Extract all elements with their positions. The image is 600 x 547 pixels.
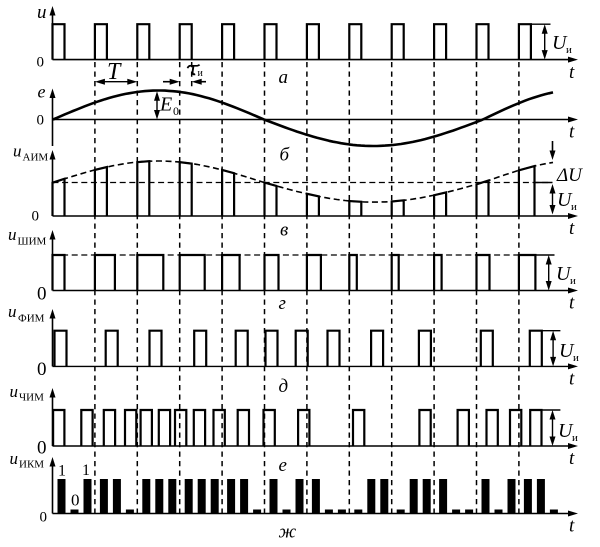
svg-text:0: 0 <box>37 54 45 70</box>
svg-text:0: 0 <box>40 510 48 526</box>
svg-text:u: u <box>8 225 17 244</box>
svg-text:б: б <box>280 145 291 166</box>
svg-text:t: t <box>569 62 575 83</box>
svg-text:г: г <box>279 293 286 314</box>
svg-text:в: в <box>280 220 288 241</box>
svg-text:t: t <box>569 448 575 469</box>
svg-text:ΔU: ΔU <box>556 165 583 186</box>
svg-text:0: 0 <box>71 491 80 510</box>
svg-text:u: u <box>13 142 22 161</box>
svg-text:и: и <box>566 44 572 56</box>
svg-text:д: д <box>279 376 289 397</box>
svg-text:1: 1 <box>82 462 90 479</box>
svg-text:1: 1 <box>58 463 66 480</box>
svg-text:0: 0 <box>173 104 179 118</box>
svg-text:а: а <box>279 67 289 88</box>
svg-text:е: е <box>279 455 287 476</box>
svg-text:0: 0 <box>37 284 47 305</box>
svg-text:t: t <box>569 369 575 390</box>
svg-text:u: u <box>10 382 19 401</box>
svg-text:u: u <box>10 449 19 468</box>
svg-text:E: E <box>159 94 172 116</box>
svg-text:ЧИМ: ЧИМ <box>19 392 44 404</box>
svg-text:u: u <box>37 2 47 23</box>
svg-text:0: 0 <box>32 209 40 225</box>
svg-text:и: и <box>572 432 578 444</box>
svg-text:ИКМ: ИКМ <box>19 459 44 471</box>
svg-text:t: t <box>569 218 575 239</box>
svg-text:и: и <box>198 68 204 79</box>
svg-text:АИМ: АИМ <box>23 152 49 164</box>
svg-text:и: и <box>570 275 576 287</box>
svg-text:0: 0 <box>37 438 47 459</box>
svg-text:ФИМ: ФИМ <box>18 313 45 325</box>
svg-text:t: t <box>569 293 575 314</box>
svg-text:T: T <box>107 59 122 85</box>
svg-text:и: и <box>571 201 577 213</box>
svg-text:ж: ж <box>279 521 297 542</box>
svg-text:t: t <box>569 516 575 537</box>
svg-text:e: e <box>38 82 46 102</box>
svg-text:и: и <box>573 352 579 364</box>
svg-text:ШИМ: ШИМ <box>18 236 47 248</box>
svg-text:t: t <box>569 122 575 143</box>
svg-text:u: u <box>8 302 17 321</box>
svg-text:0: 0 <box>37 113 45 129</box>
svg-text:0: 0 <box>37 359 47 380</box>
